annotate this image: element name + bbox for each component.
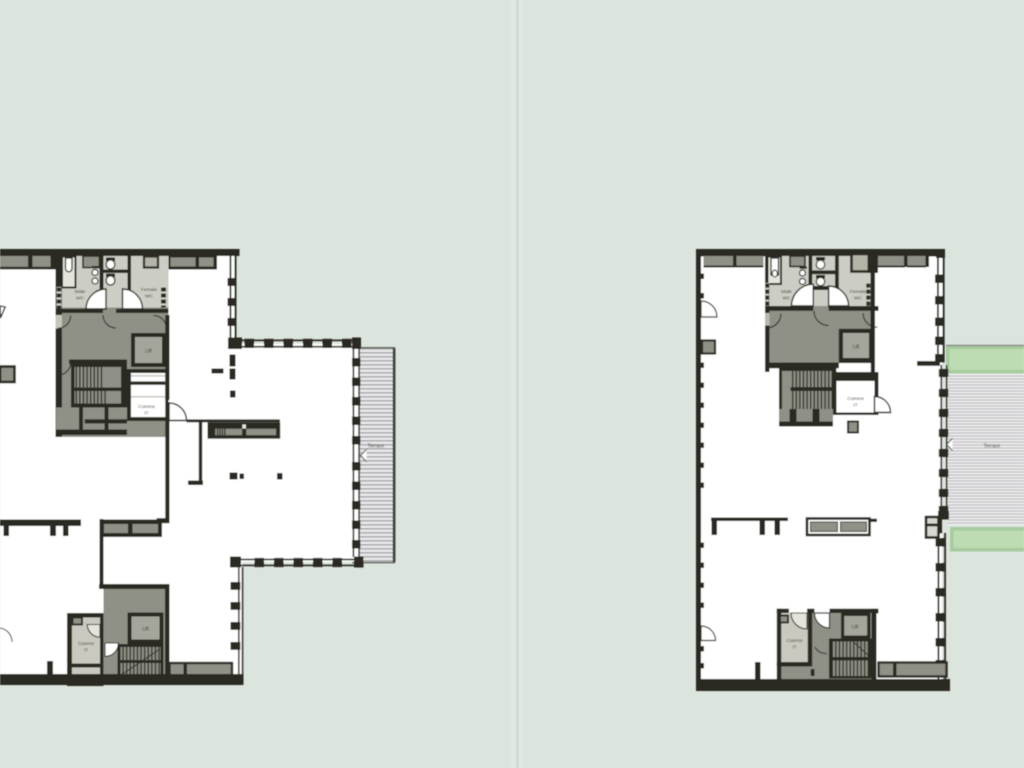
- svg-text:WC: WC: [783, 296, 792, 302]
- svg-text:Terrace: Terrace: [984, 444, 1001, 450]
- svg-text:Comms: Comms: [138, 404, 155, 410]
- svg-text:WC: WC: [145, 294, 154, 300]
- svg-text:WC: WC: [76, 296, 85, 302]
- svg-text:WC: WC: [854, 296, 863, 302]
- svg-text:IT: IT: [853, 403, 857, 409]
- svg-text:Lift: Lift: [145, 349, 152, 355]
- svg-text:Comms: Comms: [787, 638, 804, 643]
- svg-text:Male: Male: [75, 289, 86, 295]
- svg-text:Female: Female: [850, 289, 866, 295]
- svg-text:IT: IT: [792, 645, 796, 650]
- svg-text:Lift: Lift: [852, 625, 859, 631]
- svg-text:IT: IT: [84, 648, 88, 653]
- svg-text:Female: Female: [141, 287, 157, 293]
- svg-text:Comms: Comms: [847, 396, 864, 402]
- svg-text:Terrace: Terrace: [368, 444, 385, 450]
- svg-text:IT: IT: [144, 411, 148, 417]
- svg-text:Lift: Lift: [142, 627, 149, 633]
- svg-text:Male: Male: [781, 289, 792, 295]
- svg-text:Comms: Comms: [78, 641, 95, 646]
- svg-text:Lift: Lift: [853, 345, 860, 351]
